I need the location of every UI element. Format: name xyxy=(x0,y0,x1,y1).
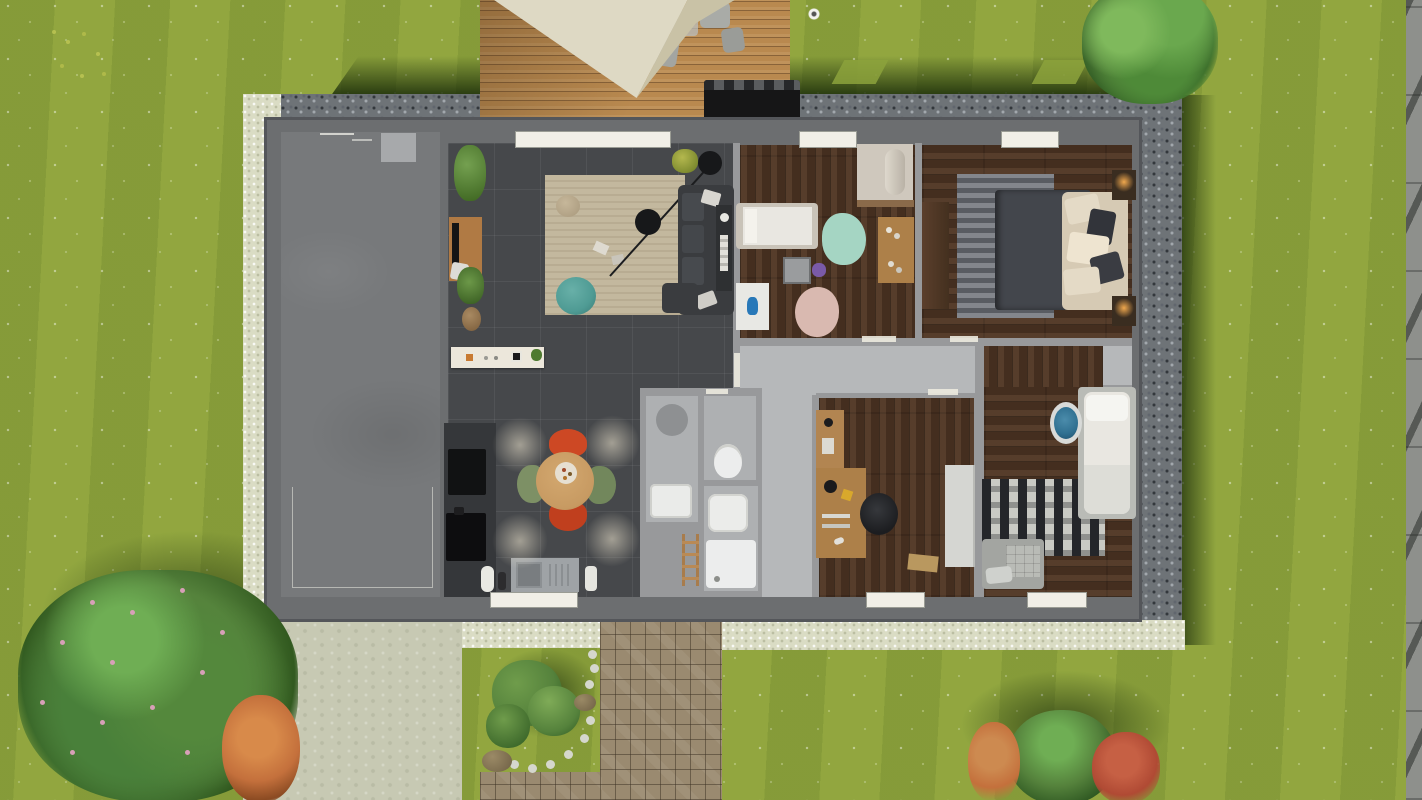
nightstand-lamp xyxy=(1114,298,1134,318)
red-bush-bottom-right xyxy=(1092,732,1160,800)
garage-heater xyxy=(381,133,416,162)
plant xyxy=(457,267,484,304)
kids-desk xyxy=(878,217,914,283)
cobblestone-path-branch xyxy=(480,772,602,800)
pillow xyxy=(1063,266,1102,296)
office-desk-return xyxy=(816,410,844,470)
window-master-bedroom xyxy=(1001,131,1059,148)
towel-ladder xyxy=(682,534,699,586)
oven xyxy=(446,513,486,561)
office-doormat xyxy=(907,553,939,572)
garage-door-marking xyxy=(292,487,433,588)
arc-lamp-shade xyxy=(635,209,661,235)
door-kids-bedroom xyxy=(862,336,896,342)
pink-rug xyxy=(795,287,839,337)
garden-bush xyxy=(486,704,530,748)
wall-bedrooms-hall xyxy=(737,338,1132,346)
grill-top xyxy=(704,80,800,90)
nightstand-lamp xyxy=(1114,172,1134,192)
desk-item-black xyxy=(824,418,833,427)
shower-tray xyxy=(706,540,756,588)
yellow-flowers xyxy=(52,30,56,34)
garden-bush xyxy=(528,686,580,736)
shelf-plant xyxy=(531,349,542,361)
dark-bottle xyxy=(498,572,506,590)
desk-item-white xyxy=(822,438,834,454)
garage-wall-marks xyxy=(352,139,372,141)
play-table xyxy=(783,257,811,284)
single-bed xyxy=(1078,387,1136,519)
black-canister xyxy=(511,351,522,362)
kids-wardrobe xyxy=(857,144,913,202)
cobblestone-path xyxy=(600,620,722,800)
wall-clock xyxy=(720,213,729,222)
office-cabinet xyxy=(945,465,975,567)
master-bed-pillows xyxy=(1062,192,1128,310)
window-kitchen xyxy=(490,592,578,608)
teal-pouf xyxy=(556,277,596,315)
closet-floor xyxy=(1103,346,1132,387)
orange-bush-bottom-right xyxy=(968,722,1020,800)
ladder-rungs xyxy=(682,540,699,580)
fence-right xyxy=(1406,0,1422,800)
food-items xyxy=(562,468,566,472)
office-chair xyxy=(860,493,898,535)
beige-pouf xyxy=(556,195,580,217)
office-desk xyxy=(816,468,866,558)
bench-pillow xyxy=(985,566,1013,585)
wall-hall-woodwing xyxy=(975,342,984,397)
pebble-strip-bottom-right xyxy=(722,620,1185,650)
yellow-note xyxy=(841,489,854,502)
jar-orange xyxy=(466,354,473,361)
garage-wall-marks xyxy=(320,133,354,135)
fridge xyxy=(448,449,486,495)
kids-bed xyxy=(736,203,818,249)
teal-rug xyxy=(822,213,866,265)
ceiling-light-glow xyxy=(584,511,640,567)
sofa-chaise xyxy=(662,283,698,313)
white-pot xyxy=(481,566,494,592)
desk-lamp xyxy=(824,480,837,493)
window-kids-bedroom xyxy=(799,131,857,148)
white-play-mat xyxy=(736,283,769,330)
hallway-vertical-floor xyxy=(762,395,816,597)
washbasin xyxy=(650,484,692,518)
keyboard xyxy=(822,514,850,518)
window-office xyxy=(866,592,925,608)
plant xyxy=(454,145,486,201)
keyboard xyxy=(822,524,850,528)
tree-top-right xyxy=(1082,0,1218,104)
table-plate xyxy=(555,462,577,484)
magazines xyxy=(720,235,728,271)
window-living xyxy=(515,131,671,148)
door-living-hall xyxy=(734,353,740,387)
kitchen-shelf xyxy=(451,347,544,368)
toilet xyxy=(714,444,742,478)
arc-lamp-base xyxy=(698,151,722,175)
sofa-console xyxy=(716,205,732,291)
orange-bush xyxy=(222,695,300,800)
plant xyxy=(672,149,698,173)
sofa-cushion xyxy=(682,257,704,285)
white-canister xyxy=(585,566,597,591)
master-wardrobe xyxy=(922,202,949,309)
blue-round-chair xyxy=(1050,402,1082,444)
jar-gray xyxy=(484,356,488,360)
sofa-cushion xyxy=(682,225,704,253)
door-master-bedroom xyxy=(950,336,978,342)
ceiling-light-glow xyxy=(492,513,548,569)
shower-drain xyxy=(714,576,720,582)
hallway-floor xyxy=(737,346,975,395)
white-flower xyxy=(808,8,820,20)
single-bed-blanket xyxy=(1084,465,1130,514)
pebble-strip-bottom-left xyxy=(462,620,605,648)
pink-flowers xyxy=(90,600,95,605)
house xyxy=(264,117,1142,622)
jar-gray xyxy=(494,356,498,360)
wall-bedrooms-divider xyxy=(915,143,922,340)
floorplan-viewport[interactable] xyxy=(0,0,1422,800)
basket xyxy=(462,307,481,331)
house-shadow-right xyxy=(1180,95,1216,645)
purple-toy xyxy=(812,263,826,277)
oven-knob xyxy=(454,507,464,515)
desk-papers xyxy=(886,227,892,233)
bathroom-block xyxy=(640,388,762,597)
single-bed-pillow xyxy=(1086,395,1128,421)
door-wc xyxy=(706,389,728,394)
mouse xyxy=(833,536,844,545)
kids-bed-pillow xyxy=(745,209,757,243)
window-bedroom3 xyxy=(1027,592,1087,608)
blue-vase xyxy=(747,297,758,315)
ceiling-light-glow xyxy=(584,415,640,471)
brown-rock xyxy=(482,750,512,772)
rolled-duvet xyxy=(885,149,905,195)
bbq-grill xyxy=(704,80,800,122)
kids-wardrobe-base xyxy=(857,200,914,207)
bench xyxy=(982,539,1044,589)
shower-head xyxy=(656,404,688,436)
brown-rock xyxy=(574,694,596,711)
dining-table xyxy=(536,452,594,510)
blue-chair-seat xyxy=(1054,407,1078,439)
square-basin xyxy=(708,494,748,532)
rock-garden-bed xyxy=(480,648,602,772)
white-stones xyxy=(588,650,597,659)
gravel-strip-right xyxy=(1138,94,1182,628)
door-hall-bedroom3 xyxy=(928,389,958,395)
drainboard xyxy=(549,564,573,586)
